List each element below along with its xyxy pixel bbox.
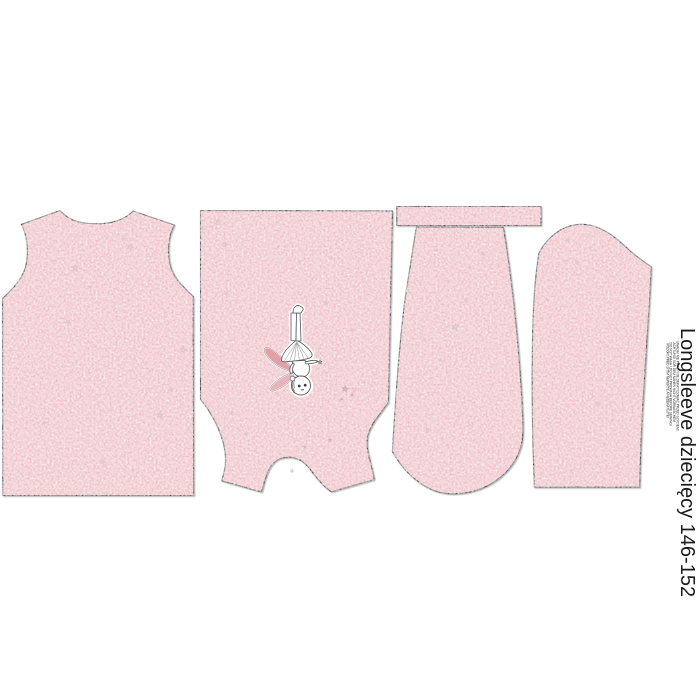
svg-text:POZOR! PŘED ŠITÍM NEPERTE A NE: POZOR! PŘED ŠITÍM NEPERTE A NEDEKATUJTE! <box>665 344 670 419</box>
